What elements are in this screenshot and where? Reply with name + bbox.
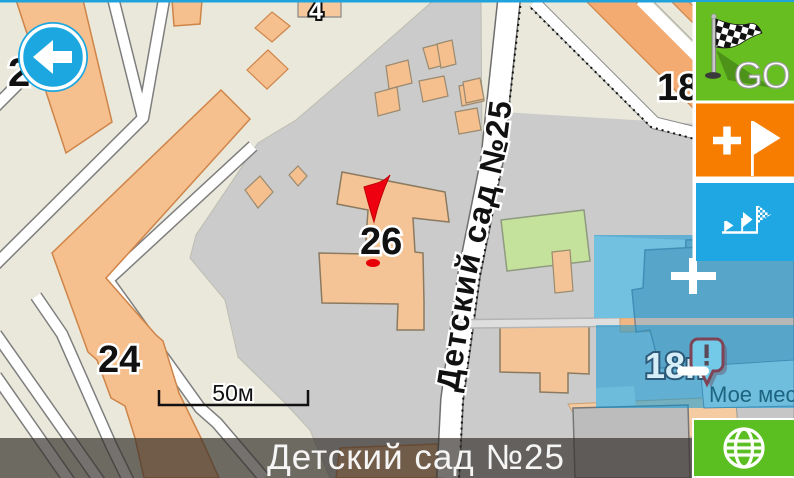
svg-text:Детский сад №25: Детский сад №25 [267,438,565,477]
svg-text:Мое мест: Мое мест [709,382,794,407]
svg-text:50м: 50м [212,380,253,406]
svg-text:24: 24 [98,339,140,381]
svg-text:26: 26 [360,221,402,263]
svg-text:4: 4 [309,0,323,25]
svg-text:GO: GO [734,55,790,96]
